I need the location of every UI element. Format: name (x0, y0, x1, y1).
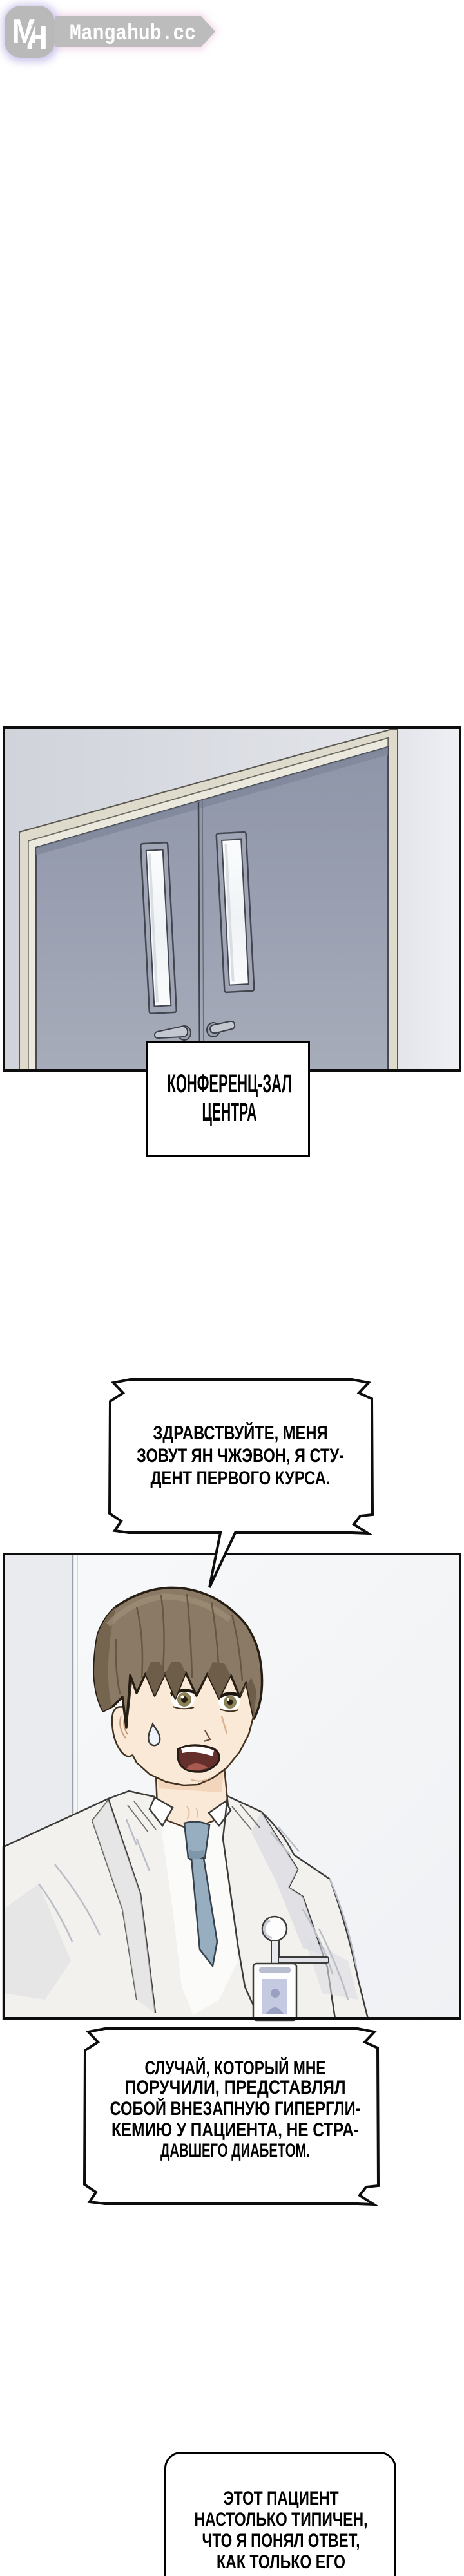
svg-text:Mangahub.cc: Mangahub.cc (70, 22, 196, 46)
